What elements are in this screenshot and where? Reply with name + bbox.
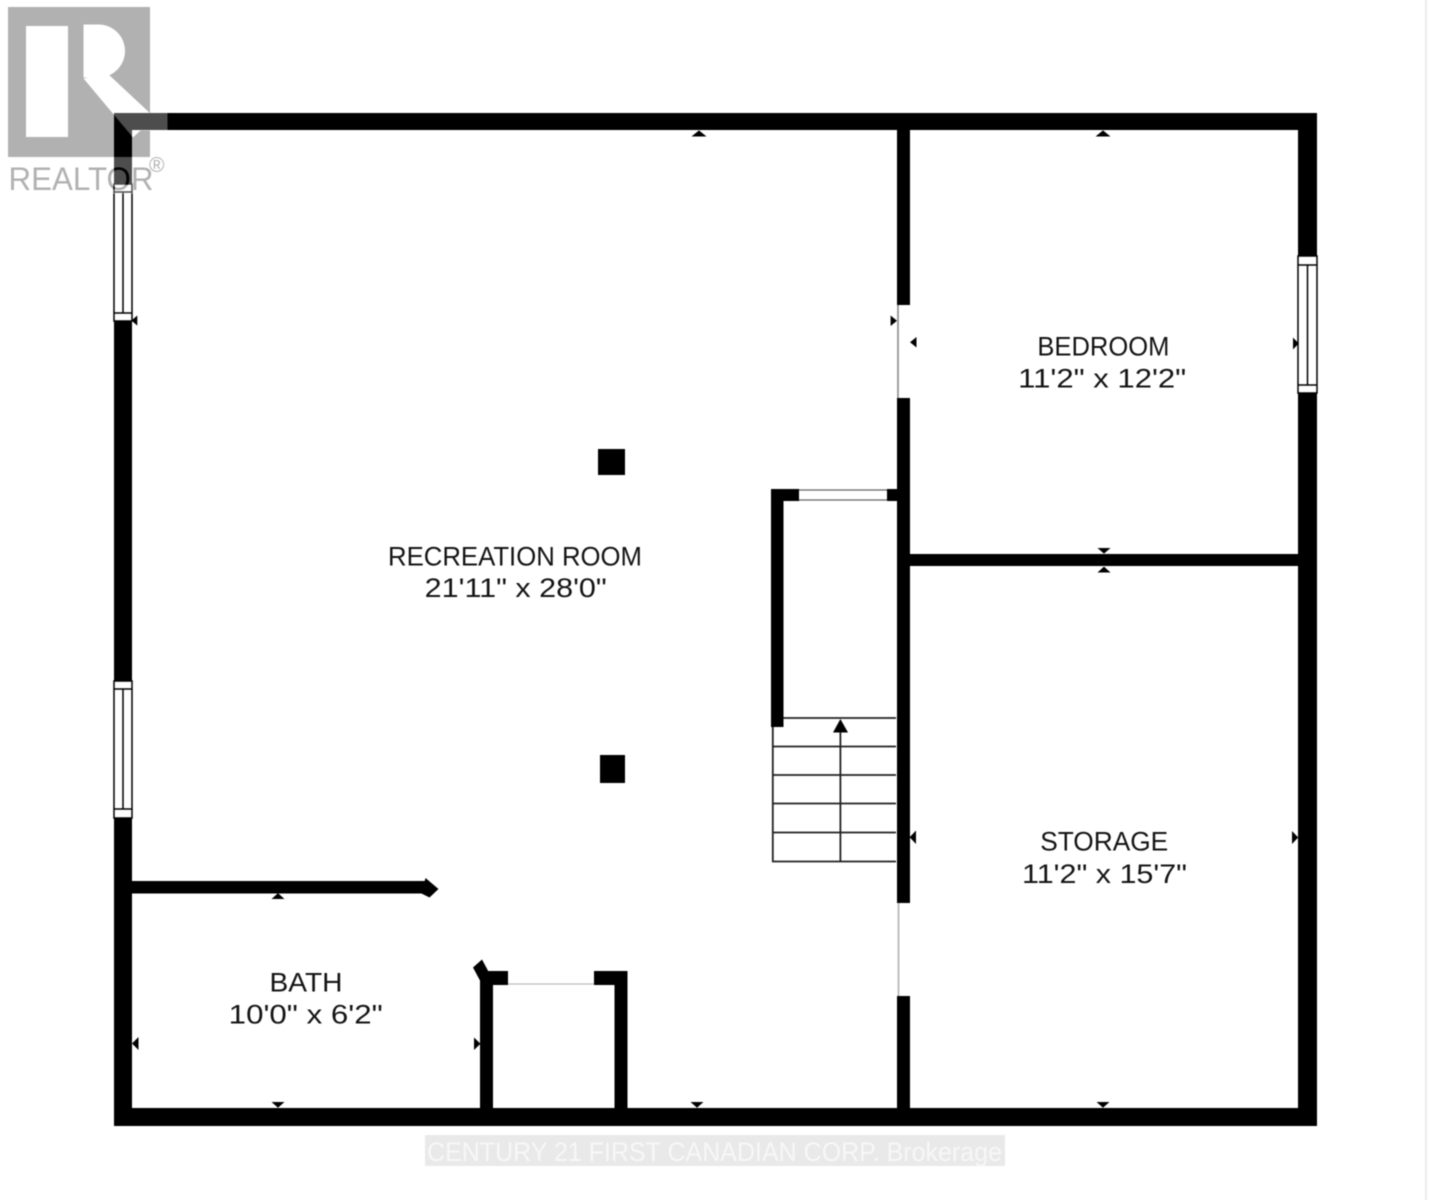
- svg-text:®: ®: [149, 154, 165, 177]
- svg-text:21'11" x 28'0": 21'11" x 28'0": [425, 573, 607, 603]
- svg-text:BEDROOM: BEDROOM: [1037, 332, 1169, 362]
- svg-text:10'0" x 6'2": 10'0" x 6'2": [229, 1000, 383, 1030]
- svg-text:RECREATION ROOM: RECREATION ROOM: [388, 542, 642, 572]
- svg-text:CENTURY 21 FIRST CANADIAN CORP: CENTURY 21 FIRST CANADIAN CORP. Brokerag…: [427, 1137, 1002, 1167]
- svg-text:STORAGE: STORAGE: [1040, 827, 1168, 857]
- svg-text:11'2" x 15'7": 11'2" x 15'7": [1022, 859, 1187, 889]
- svg-text:REALTOR: REALTOR: [9, 161, 154, 197]
- svg-text:BATH: BATH: [270, 968, 343, 998]
- svg-text:11'2" x 12'2": 11'2" x 12'2": [1018, 364, 1186, 394]
